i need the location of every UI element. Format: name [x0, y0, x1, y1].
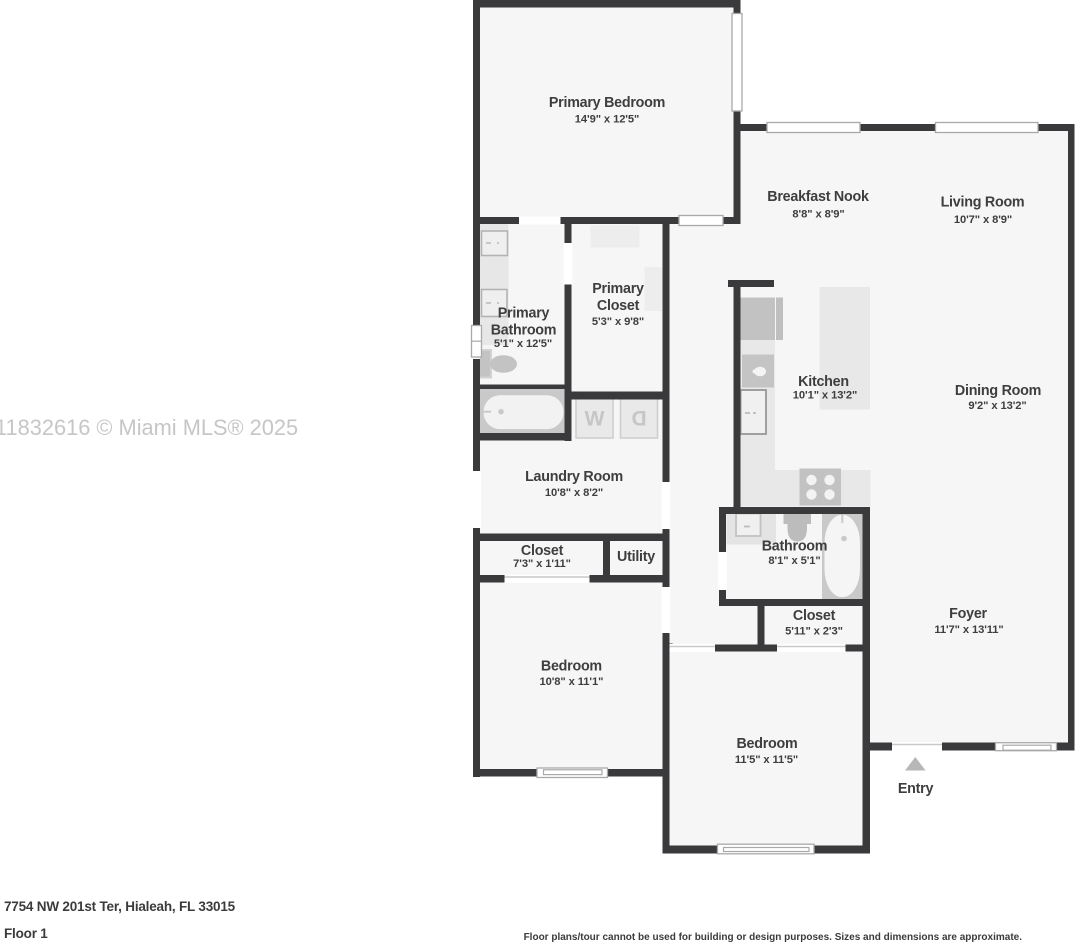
svg-text:W: W: [585, 408, 605, 431]
svg-text:Primary: Primary: [498, 306, 550, 322]
svg-text:D: D: [631, 408, 646, 431]
svg-text:Foyer: Foyer: [949, 606, 987, 622]
svg-text:7754 NW 201st Ter, Hialeah, FL: 7754 NW 201st Ter, Hialeah, FL 33015: [4, 899, 236, 914]
svg-text:Living Room: Living Room: [941, 195, 1025, 211]
svg-text:9'2" x 13'2": 9'2" x 13'2": [968, 400, 1026, 412]
svg-text:Bedroom: Bedroom: [736, 736, 797, 752]
svg-text:5'1" x 12'5": 5'1" x 12'5": [494, 338, 552, 350]
svg-text:Floor 1: Floor 1: [4, 926, 48, 941]
svg-text:Primary Bedroom: Primary Bedroom: [549, 95, 665, 111]
svg-text:Bathroom: Bathroom: [491, 323, 557, 339]
svg-text:Floor plans/tour cannot be use: Floor plans/tour cannot be used for buil…: [524, 932, 1023, 943]
svg-text:Dining Room: Dining Room: [955, 383, 1041, 399]
svg-text:Kitchen: Kitchen: [798, 374, 849, 390]
svg-text:10'1" x 13'2": 10'1" x 13'2": [793, 390, 857, 402]
svg-text:Closet: Closet: [521, 543, 564, 559]
svg-text:10'8" x 11'1": 10'8" x 11'1": [540, 676, 604, 688]
svg-text:Breakfast Nook: Breakfast Nook: [767, 189, 869, 205]
svg-text:Utility: Utility: [617, 549, 655, 565]
svg-text:Entry: Entry: [898, 781, 934, 797]
svg-text:Primary: Primary: [592, 281, 644, 297]
svg-text:7'3" x 1'11": 7'3" x 1'11": [513, 558, 571, 570]
svg-text:Closet: Closet: [793, 608, 836, 624]
svg-text:8'8" x 8'9": 8'8" x 8'9": [792, 209, 844, 221]
svg-text:10'8" x 8'2": 10'8" x 8'2": [545, 487, 603, 499]
svg-text:10'7" x 8'9": 10'7" x 8'9": [954, 214, 1012, 226]
svg-text:Bathroom: Bathroom: [762, 539, 828, 555]
svg-text:11'7" x 13'11": 11'7" x 13'11": [934, 624, 1003, 636]
svg-text:5'11" x 2'3": 5'11" x 2'3": [785, 626, 843, 638]
svg-text:14'9" x 12'5": 14'9" x 12'5": [575, 114, 639, 126]
svg-text:11832616 © Miami MLS® 2025: 11832616 © Miami MLS® 2025: [0, 415, 298, 440]
svg-text:Bedroom: Bedroom: [541, 658, 602, 674]
svg-text:Laundry Room: Laundry Room: [525, 469, 623, 485]
svg-text:11'5" x 11'5": 11'5" x 11'5": [735, 754, 798, 766]
svg-text:Closet: Closet: [597, 298, 640, 314]
svg-text:8'1" x 5'1": 8'1" x 5'1": [768, 555, 820, 567]
svg-text:5'3" x 9'8": 5'3" x 9'8": [592, 316, 644, 328]
